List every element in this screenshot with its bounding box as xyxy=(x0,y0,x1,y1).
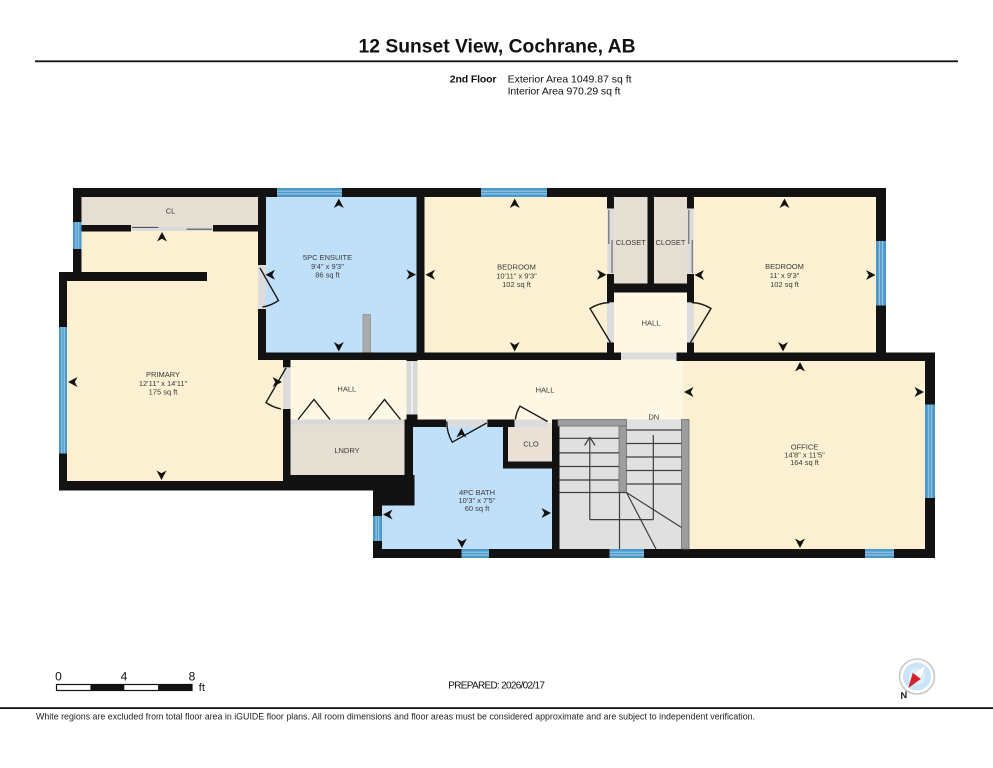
svg-text:12 Sunset View, Cochrane, AB: 12 Sunset View, Cochrane, AB xyxy=(359,37,636,58)
svg-text:5PC ENSUITE: 5PC ENSUITE xyxy=(303,253,352,262)
svg-text:CLOSET: CLOSET xyxy=(655,238,685,247)
svg-text:White regions are excluded fro: White regions are excluded from total fl… xyxy=(36,712,755,722)
svg-text:PRIMARY: PRIMARY xyxy=(146,370,180,379)
svg-text:12'11" x 14'11": 12'11" x 14'11" xyxy=(139,379,188,388)
svg-text:BEDROOM: BEDROOM xyxy=(497,263,536,272)
svg-text:PREPARED: 2026/02/17: PREPARED: 2026/02/17 xyxy=(448,681,545,692)
svg-text:0: 0 xyxy=(55,669,62,683)
svg-text:HALL: HALL xyxy=(337,385,356,394)
svg-text:LNDRY: LNDRY xyxy=(334,446,359,455)
svg-text:102 sq ft: 102 sq ft xyxy=(502,280,532,289)
svg-text:HALL: HALL xyxy=(642,319,661,328)
svg-text:102 sq ft: 102 sq ft xyxy=(770,280,800,289)
svg-text:CLO: CLO xyxy=(523,440,539,449)
svg-text:CLOSET: CLOSET xyxy=(616,238,646,247)
svg-text:164 sq ft: 164 sq ft xyxy=(790,458,820,467)
svg-text:Exterior Area 1049.87 sq ft: Exterior Area 1049.87 sq ft xyxy=(508,73,632,85)
svg-text:DN: DN xyxy=(648,412,659,421)
svg-text:60 sq ft: 60 sq ft xyxy=(465,504,491,513)
svg-text:86 sq ft: 86 sq ft xyxy=(315,270,341,279)
svg-text:2nd Floor: 2nd Floor xyxy=(450,73,497,85)
svg-text:175 sq ft: 175 sq ft xyxy=(149,388,179,397)
svg-text:4: 4 xyxy=(121,669,128,683)
svg-text:11' x 9'3": 11' x 9'3" xyxy=(770,271,800,280)
svg-text:ft: ft xyxy=(199,682,205,694)
svg-text:Interior Area 970.29 sq ft: Interior Area 970.29 sq ft xyxy=(508,85,621,97)
svg-text:CL: CL xyxy=(166,207,176,216)
svg-text:8: 8 xyxy=(189,669,196,683)
svg-text:BEDROOM: BEDROOM xyxy=(765,262,804,271)
svg-text:HALL: HALL xyxy=(536,385,555,394)
